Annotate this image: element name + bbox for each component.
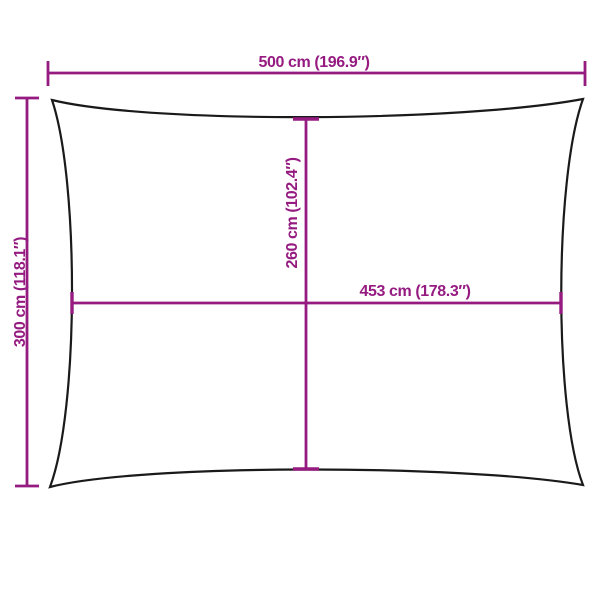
dimension-overall-height-label: 300 cm (118.1″) (12, 237, 29, 347)
sail-outline (50, 99, 583, 487)
dimension-inner-height: 260 cm (102.4″) (284, 118, 319, 470)
dimension-inner-width: 453 cm (178.3″) (72, 283, 561, 314)
dimension-overall-width: 500 cm (196.9″) (48, 54, 585, 86)
dimension-overall-width-label: 500 cm (196.9″) (258, 54, 369, 71)
dimension-inner-height-label: 260 cm (102.4″) (284, 157, 301, 268)
dimension-diagram: 500 cm (196.9″) 300 cm (118.1″) 260 cm (… (0, 0, 600, 600)
dimension-overall-height: 300 cm (118.1″) (12, 98, 39, 486)
diagram-canvas: 500 cm (196.9″) 300 cm (118.1″) 260 cm (… (0, 0, 600, 600)
dimension-inner-width-label: 453 cm (178.3″) (359, 283, 470, 300)
